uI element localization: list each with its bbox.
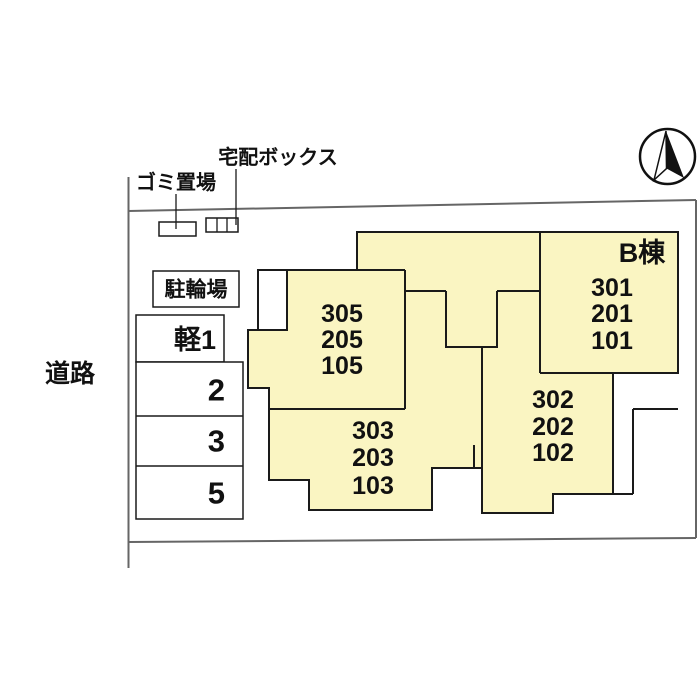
unit-stack-west: 305 205 105 xyxy=(321,300,363,380)
unit-label: 101 xyxy=(591,327,633,355)
unit-label: 105 xyxy=(321,352,363,380)
parking-column xyxy=(136,362,243,519)
north-compass-icon xyxy=(640,129,695,184)
site-plan-canvas: ゴミ置場 宅配ボックス 駐輪場 軽1 2 3 5 道路 B棟 305 205 1… xyxy=(0,0,700,700)
parking-spot-label: 2 xyxy=(208,373,225,408)
boundary-line-top xyxy=(129,200,697,211)
unit-label: 203 xyxy=(352,444,394,472)
building-name-label: B棟 xyxy=(619,238,666,268)
parking-spot-label: 5 xyxy=(208,476,225,511)
unit-label: 201 xyxy=(591,300,633,328)
unit-label: 301 xyxy=(591,274,633,302)
boundary-line-bottom xyxy=(129,538,697,542)
bicycle-parking-label: 駐輪場 xyxy=(165,278,228,302)
unit-label: 303 xyxy=(352,417,394,445)
terrace-outline xyxy=(613,409,678,494)
delivery-box xyxy=(206,218,238,232)
unit-label: 102 xyxy=(532,439,574,467)
unit-stack-south: 302 202 102 xyxy=(532,386,574,467)
delivery-box-label: 宅配ボックス xyxy=(218,145,337,169)
garbage-box xyxy=(159,222,196,236)
garbage-label: ゴミ置場 xyxy=(136,170,216,194)
unit-label: 103 xyxy=(352,472,394,500)
kei-parking-label: 軽1 xyxy=(174,325,216,355)
unit-label: 205 xyxy=(321,326,363,354)
road-label: 道路 xyxy=(45,359,96,388)
unit-label: 305 xyxy=(321,300,363,328)
unit-label: 302 xyxy=(532,386,574,414)
parking-spot-label: 3 xyxy=(208,424,225,459)
site-plan: ゴミ置場 宅配ボックス 駐輪場 軽1 2 3 5 道路 B棟 305 205 1… xyxy=(0,0,700,700)
unit-stack-east: 301 201 101 xyxy=(591,274,633,355)
unit-label: 202 xyxy=(532,413,574,441)
unit-stack-southwest: 303 203 103 xyxy=(352,417,394,500)
building-west-notch xyxy=(258,270,287,330)
